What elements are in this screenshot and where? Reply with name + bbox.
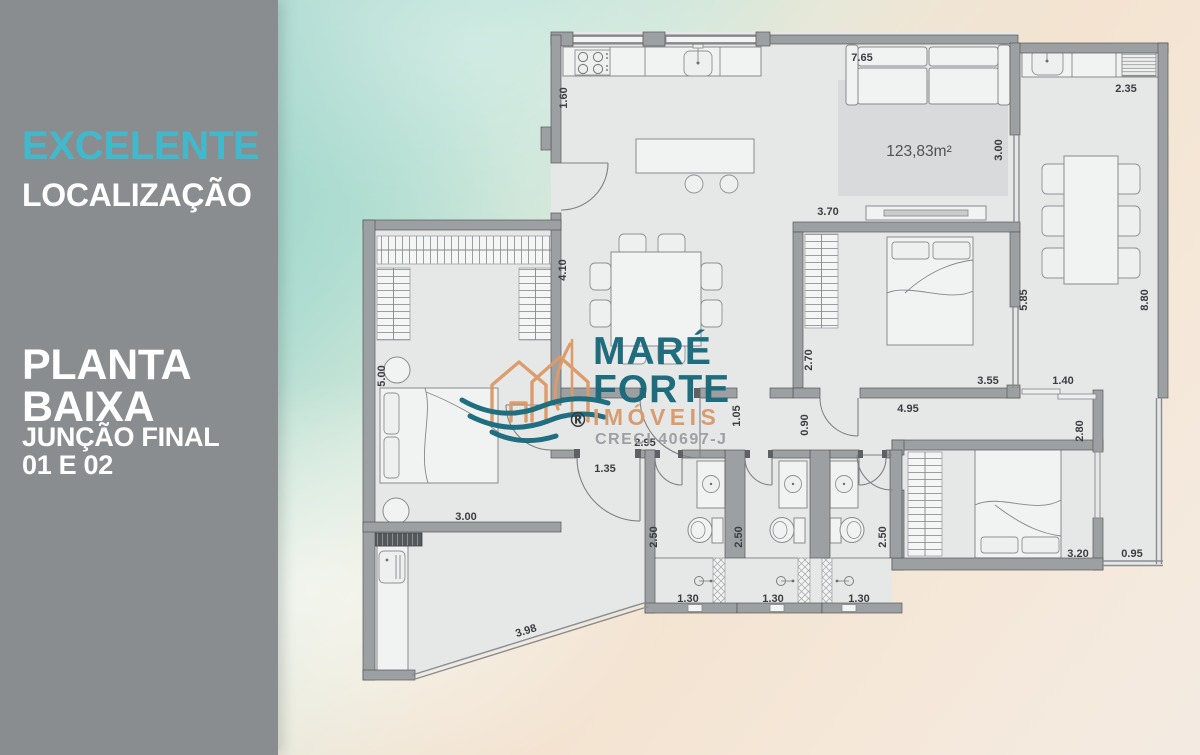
double-bed — [975, 448, 1061, 558]
grill-icon — [375, 533, 422, 546]
dimension-label: 2.50 — [877, 526, 889, 547]
dimension-label: 8.80 — [1139, 289, 1151, 310]
dimension-label: 3.20 — [1067, 548, 1088, 560]
stool-icon — [720, 175, 738, 193]
sidebar-subtitle-line1: JUNÇÃO FINAL — [22, 422, 219, 453]
registered-trademark-icon: ® — [568, 408, 588, 432]
dimension-label: 4.95 — [897, 403, 918, 415]
dimension-label: 1.40 — [1052, 375, 1073, 387]
kitchen-island — [636, 139, 754, 173]
dimension-label: 3.00 — [455, 511, 476, 523]
dimension-label: 2.50 — [648, 526, 660, 547]
logo-subtitle: IMÓVEIS — [593, 403, 720, 430]
area-label: 123,83m² — [886, 143, 951, 160]
tv-console — [866, 206, 986, 220]
sidebar-subtitle-line2: 01 E 02 — [22, 450, 113, 481]
dimension-label: 2.35 — [1115, 83, 1136, 95]
dimension-label: 1.35 — [594, 463, 615, 475]
dimension-label: 5.85 — [1018, 289, 1030, 310]
apartment-floor — [363, 32, 1168, 680]
dimension-label: 5.00 — [376, 365, 388, 386]
dimension-label: 2.70 — [803, 349, 815, 370]
dimension-label: 4.10 — [557, 259, 569, 280]
dimension-label: 1.30 — [848, 593, 869, 605]
dimension-label: 0.90 — [799, 414, 811, 435]
sidebar-headline: LOCALIZAÇÃO — [22, 177, 252, 214]
dining-table — [1064, 156, 1118, 284]
dimension-label: 1.05 — [731, 405, 743, 426]
listing-image: EXCELENTE LOCALIZAÇÃO PLANTA BAIXA JUNÇÃ… — [0, 0, 1200, 755]
dimension-label: 1.30 — [677, 593, 698, 605]
side-table — [383, 498, 409, 524]
dimension-label: 3.70 — [817, 206, 838, 218]
double-bed — [887, 237, 973, 345]
dimension-label: 1.60 — [558, 87, 570, 108]
stool-icon — [685, 175, 703, 193]
right-dining-area — [1042, 156, 1140, 284]
dimension-label: 1.30 — [762, 593, 783, 605]
bedroom-2 — [908, 448, 1061, 558]
dimension-label: 0.95 — [1121, 548, 1142, 560]
bedroom-1 — [805, 234, 973, 345]
dimension-label: 2.50 — [733, 526, 745, 547]
double-bed — [380, 388, 498, 483]
dimension-label: 3.55 — [977, 375, 998, 387]
dimension-label: 7.65 — [851, 52, 872, 64]
sidebar: EXCELENTE LOCALIZAÇÃO PLANTA BAIXA JUNÇÃ… — [0, 0, 278, 755]
sidebar-headline-accent: EXCELENTE — [22, 124, 259, 169]
logo-license: CRECI 40697-J — [595, 431, 727, 448]
bar-sink-icon — [379, 551, 405, 583]
dimension-label: 2.80 — [1074, 420, 1086, 441]
logo-name-line1: MARÉ — [593, 329, 712, 373]
dimension-label: 3.00 — [993, 139, 1005, 160]
